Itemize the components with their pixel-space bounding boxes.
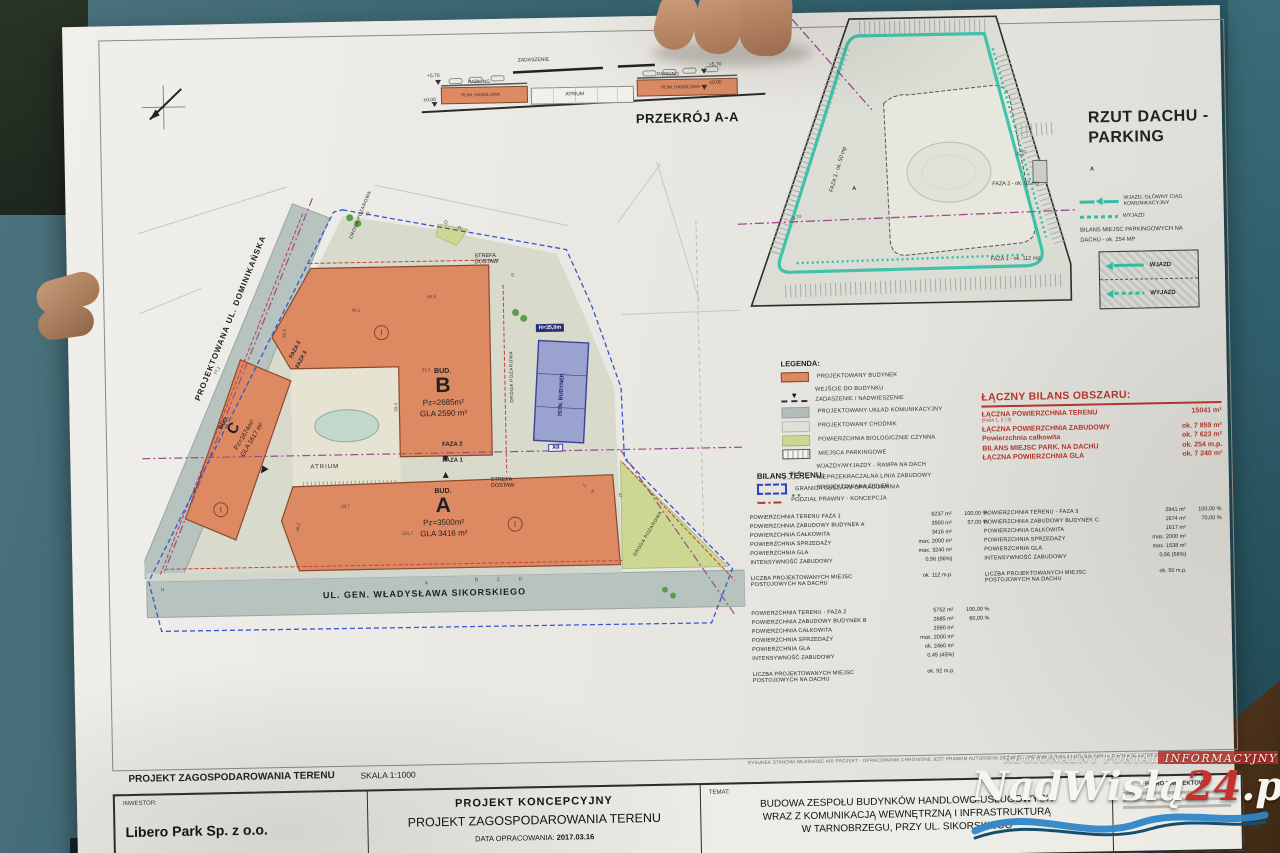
legend-item: ZADASZENIE / NADWIESZENIE (781, 394, 993, 404)
ramp-entry-row: WJAZD (1100, 250, 1199, 279)
table-cell-value: ok. 2460 m² (900, 643, 954, 650)
table-cell-pct (954, 628, 990, 629)
legend-item: WEJŚCIE DO BUDYNKU (781, 382, 993, 395)
legend-item: POWIERZCHNIA BIOLOGICZNIE CZYNNA (782, 431, 994, 446)
table-cell-label: POWIERZCHNIA GLA (750, 548, 898, 557)
table-cell-value: 5752 m² (899, 607, 953, 614)
table-cell-pct (952, 560, 988, 561)
zadaszenie-label: ZADASZENIE (518, 58, 550, 64)
table-cell-value: 2685 m² (899, 616, 953, 623)
table-faza2: POWIERZCHNIA TERENU - FAZA 25752 m²100,0… (751, 603, 990, 687)
table-cell-label: POWIERZCHNIA GLA (984, 544, 1132, 553)
summary-label: Powierzchnia całkowita (982, 434, 1060, 443)
delivery-zone-label: STREFADOSTAW (491, 477, 515, 490)
table-cell-value: 0,56 (56%) (1132, 552, 1186, 559)
project-type: PROJEKT KONCEPCYJNY (368, 793, 700, 811)
ramp-entry-label: WJAZD (1150, 261, 1171, 267)
dimension-label: 58,7 (341, 504, 350, 509)
section-marker: A (852, 186, 856, 192)
table-row: INTENSYWNOŚĆ ZABUDOWY0,56 (56%) (750, 556, 988, 567)
table-cell-value: ok. 92 m.p. (900, 668, 954, 675)
building-b-label: BUD. B Pz=2685m² GLA 2590 m² (393, 367, 494, 419)
date-label: DATA OPRACOWANIA: (475, 833, 555, 844)
total-balance-rows: ŁĄCZNA POWIERZCHNIA TERENU(Faza 1, 2 i 3… (982, 407, 1223, 462)
legend-item: PROJEKTOWANY CHODNIK (782, 417, 994, 432)
watermark: REGIONALNY PORTAL INFORMACYJNY NadWisłą2… (970, 751, 1280, 851)
total-balance: ŁĄCZNY BILANS OBSZARU: ŁĄCZNA POWIERZCHN… (981, 387, 1222, 464)
table-cell-label: POWIERZCHNIA GLA (752, 644, 900, 653)
table-faza3: POWIERZCHNIA TERENU - FAZA 32941 m²100,0… (983, 503, 1222, 587)
summary-label: ŁĄCZNA POWIERZCHNIA ZABUDOWY (982, 424, 1110, 433)
table-cell-value: 1674 m² (1132, 516, 1186, 523)
plan-title: PROJEKT ZAGOSPODAROWANIA TERENU (128, 770, 334, 785)
sw-mp-swatch (782, 449, 810, 460)
dimension-label: 131,7 (402, 531, 413, 536)
table-cell-pct: 70,00 % (1186, 515, 1222, 522)
roof-balance-line2: DACHU - ok. 254 MP (1080, 237, 1135, 245)
table-cell-label: POWIERZCHNIA ZABUDOWY BUDYNEK B (752, 617, 900, 626)
table-cell-pct (1186, 528, 1222, 529)
table-cell-label: POWIERZCHNIA ZABUDOWY BUDYNEK A (750, 521, 898, 530)
section-marker: A (1090, 166, 1094, 172)
survey-marker: B (475, 577, 478, 583)
table-cell-label: POWIERZCHNIA CAŁKOWITA (984, 526, 1132, 535)
table-cell-label: POWIERZCHNIA SPRZEDAŻY (752, 635, 900, 644)
legend-label: GRANICA OBSZARU OPRACOWANIA (795, 484, 900, 492)
table-cell-pct: 100,00 % (953, 606, 989, 613)
parking-label: PARKING (468, 80, 490, 86)
sw-walk-swatch (782, 421, 810, 433)
table-cell-label: INTENSYWNOŚĆ ZABUDOWY (752, 653, 900, 662)
terrain-balance: BILANS TERENU: GRANICA OBSZARU OPRACOWAN… (757, 468, 978, 508)
ramp-exit-row: WYJAZD (1100, 277, 1199, 307)
survey-marker: D (519, 576, 523, 582)
summary-value: ok. 7 240 m² (1182, 450, 1222, 458)
dimension-label: 60,9 (427, 294, 436, 299)
legend-item: PROJEKTOWANY BUDYNEK (781, 368, 993, 382)
entry-line (1114, 263, 1144, 267)
legend-label: MIEJSCA PARKINGOWE (818, 450, 886, 457)
project-name: PROJEKT ZAGOSPODAROWANIA TERENU (368, 810, 700, 830)
site-plan: PROJEKTOWANA UL. DOMINIKAŃSKA UL. GEN. W… (137, 160, 746, 649)
terrain-balance-list: GRANICA OBSZARU OPRACOWANIAPODZIAŁ PRAWN… (757, 480, 977, 504)
atrium-label: ATRIUM (565, 92, 584, 98)
legend-label: PROJEKTOWANY BUDYNEK (817, 372, 897, 380)
subject-label: TEMAT: (709, 790, 730, 796)
exit-line-swatch (1080, 215, 1118, 219)
survey-marker: A (591, 489, 594, 495)
investor-cell: INWESTOR: Libero Park Sp. z o.o. (115, 791, 369, 853)
table-cell-pct: 60,00 % (953, 615, 989, 622)
table-cell-label: POWIERZCHNIA SPRZEDAŻY (750, 539, 898, 548)
xii-label: XII (548, 444, 563, 452)
table-cell-pct: 100,00 % (1185, 506, 1221, 513)
sw-bio-swatch (782, 435, 810, 447)
table-cell-pct (954, 637, 990, 638)
sw-road-swatch (781, 406, 809, 418)
table-cell-value: max. 1538 m² (1132, 543, 1186, 550)
legend-label: POWIERZCHNIA BIOLOGICZNIE CZYNNA (818, 435, 935, 443)
table-cell-pct: 100,00 % (951, 511, 987, 518)
total-balance-title: ŁĄCZNY BILANS OBSZARU: (981, 387, 1221, 408)
table-cell-pct (1186, 555, 1222, 556)
dimension-label: 35,4 (282, 329, 287, 338)
summary-value: 15041 m² (1192, 407, 1222, 415)
table-cell-label: LICZBA PROJEKTOWANYCH MIEJSC POSTOJOWYCH… (753, 669, 901, 684)
table-cell-pct: 57,00 % (952, 520, 988, 527)
table-cell-pct (953, 576, 989, 577)
roof-faza1-label: FAZA 1 - ok. 112 mp (991, 255, 1041, 262)
sw-bld-swatch (781, 372, 809, 383)
table-row: LICZBA PROJEKTOWANYCH MIEJSC POSTOJOWYCH… (985, 567, 1223, 584)
table-cell-value: max. 2000 m² (1132, 534, 1186, 541)
roof-title-line2: PARKING (1088, 128, 1164, 148)
table-cell-value: 3416 m² (898, 529, 952, 536)
table-cell-label: LICZBA PROJEKTOWANYCH MIEJSC POSTOJOWYCH… (985, 569, 1133, 584)
survey-marker: H (161, 587, 165, 593)
summary-row: ŁĄCZNA POWIERZCHNIA GLAok. 7 240 m² (982, 450, 1222, 462)
legend-item: PROJEKTOWANY UKŁAD KOMUNIKACYJNY (781, 403, 993, 418)
ramp-exit-label: WYJAZD (1150, 289, 1175, 295)
dimension-label: 31,4 (422, 367, 431, 372)
route-line-swatch (1104, 200, 1119, 203)
table-cell-value: 3500 m² (898, 520, 952, 527)
delivery-zone-label: STREFADOSTAW (474, 253, 498, 266)
exit-line (1114, 291, 1144, 295)
project-cell: PROJEKT KONCEPCYJNY PROJEKT ZAGOSPODAROW… (368, 785, 702, 853)
roof-legend-label: WJAZD, GŁÓWNY CIĄGKOMUNIKACYJNY (1123, 194, 1182, 208)
legend-label: ZADASZENIE / NADWIESZENIE (815, 395, 904, 403)
survey-marker: A (425, 580, 428, 586)
investor-label: INWESTOR: (123, 801, 157, 808)
dimension-label: 46,1 (351, 308, 360, 313)
hand-left (36, 266, 122, 362)
table-faza1: POWIERZCHNIA TERENU FAZA 16237 m²100,00 … (749, 508, 988, 592)
date-row: DATA OPRACOWANIA: 2017.03.16 (369, 830, 701, 845)
table-cell-pct (1187, 571, 1223, 572)
watermark-wave-icon (970, 809, 1270, 849)
table-cell-label: INTENSYWNOŚĆ ZABUDOWY (984, 553, 1132, 562)
roof-title-line1: RZUT DACHU - (1088, 107, 1209, 128)
summary-value: ok. 7 859 m² (1182, 422, 1222, 430)
table-cell-pct (954, 646, 990, 647)
table-cell-label: LICZBA PROJEKTOWANYCH MIEJSC POSTOJOWYCH… (751, 573, 899, 588)
level-label: ±0,00 (709, 81, 722, 87)
plan-board: ZADASZENIE +5,70 ±0,00 PARKING POW. HAND… (62, 5, 1236, 853)
table-cell-label: POWIERZCHNIA CAŁKOWITA (750, 530, 898, 539)
table-cell-value: 2941 m² (1131, 507, 1185, 514)
summary-sublabel: (Faza 1, 2 i 3) (982, 416, 1098, 423)
roof-ramp-strip: WJAZD WYJAZD (1099, 249, 1200, 309)
table-cell-pct (952, 551, 988, 552)
table-row: INTENSYWNOŚĆ ZABUDOWY0,56 (56%) (984, 551, 1222, 562)
legend-label: WEJŚCIE DO BUDYNKU (815, 385, 883, 392)
date-value: 2017.03.16 (557, 832, 595, 842)
height-label: H=35,0m (536, 324, 564, 333)
faza1-label: FAZA 1 (442, 458, 463, 465)
table-row: INTENSYWNOŚĆ ZABUDOWY0,45 (45%) (752, 651, 990, 662)
table-row: LICZBA PROJEKTOWANYCH MIEJSC POSTOJOWYCH… (751, 572, 989, 589)
table-cell-value: 6237 m² (897, 511, 951, 518)
route-line-swatch (1080, 200, 1095, 203)
dimension-label: 33,4 (393, 403, 398, 412)
faza2-label: FAZA 2 (442, 442, 463, 449)
retail-label: POW. HANDLOWA (661, 84, 700, 90)
north-arrow-icon (133, 77, 194, 138)
table-cell-value: 1617 m² (1132, 525, 1186, 532)
atrium-label: ATRIUM (310, 464, 339, 471)
table-cell-value: 2590 m² (900, 625, 954, 632)
legend-item: PODZIAŁ PRAWNY - KONCEPCJA (757, 494, 977, 504)
table-cell-label: POWIERZCHNIA TERENU FAZA 1 (750, 512, 898, 521)
table-cell-pct (1186, 546, 1222, 547)
table-cell-pct (952, 533, 988, 534)
table-cell-value: max. 2000 m² (898, 538, 952, 545)
table-cell-value: 0,56 (56%) (898, 556, 952, 563)
legend-label: PROJEKTOWANY CHODNIK (818, 421, 897, 429)
watermark-logo: NadWisłą24.pl (972, 763, 1280, 810)
survey-marker: V (583, 483, 586, 489)
retail-label: POW. HANDLOWA (461, 92, 500, 98)
cross-section-title: PRZEKRÓJ A-A (636, 110, 739, 127)
table-cell-label: POWIERZCHNIA ZABUDOWY BUDYNEK C (984, 517, 1132, 526)
roof-legend-label: WYJAZD (1123, 212, 1145, 219)
survey-marker: O (366, 211, 370, 217)
summary-row: ŁĄCZNA POWIERZCHNIA TERENU(Faza 1, 2 i 3… (982, 407, 1222, 424)
roof-balance-line1: BILANS MIEJSC PARKINGOWYCH NA (1080, 226, 1183, 235)
table-cell-value: max. 2000 m² (900, 634, 954, 641)
survey-marker: S (511, 273, 514, 279)
sw-dash-swatch (781, 400, 807, 402)
survey-marker: R (458, 226, 462, 232)
table-cell-value: ok. 50 m.p. (1133, 568, 1187, 575)
table-cell-value: 0,45 (45%) (900, 652, 954, 659)
survey-marker: Q (444, 220, 448, 226)
legend-label: PODZIAŁ PRAWNY - KONCEPCJA (791, 496, 887, 504)
legend-item: GRANICA OBSZARU OPRACOWANIA (757, 480, 977, 495)
photo-stage: ZADASZENIE +5,70 ±0,00 PARKING POW. HAND… (0, 0, 1280, 853)
table-cell-value: max. 3240 m² (898, 547, 952, 554)
entry-arrow-icon (1106, 262, 1113, 270)
survey-marker: E (619, 493, 622, 499)
legend-item: MIEJSCA PARKINGOWE (782, 445, 994, 459)
finger (739, 0, 793, 57)
summary-value: ok. 7 623 m² (1182, 431, 1222, 439)
table-cell-label: INTENSYWNOŚĆ ZABUDOWY (750, 557, 898, 566)
level-label: +5,70 (427, 74, 440, 80)
survey-marker: C (497, 577, 501, 583)
summary-value: ok. 254 m.p. (1182, 440, 1222, 448)
roof-legend-route: WJAZD, GŁÓWNY CIĄGKOMUNIKACYJNY (1079, 194, 1182, 209)
summary-label: ŁĄCZNA POWIERZCHNIA GLA (982, 453, 1084, 462)
level-label: ±0,00 (423, 98, 436, 104)
table-cell-label: POWIERZCHNIA SPRZEDAŻY (984, 535, 1132, 544)
legend-label: PROJEKTOWANY UKŁAD KOMUNIKACYJNY (817, 406, 942, 414)
scale-label: SKALA 1:1000 (360, 770, 415, 781)
summary-label: BILANS MIEJSC PARK. NA DACHU (982, 443, 1098, 452)
table-cell-pct (1186, 537, 1222, 538)
table-cell-label: POWIERZCHNIA TERENU - FAZA 2 (751, 608, 899, 617)
sw-granica-swatch (757, 484, 787, 496)
table-cell-pct (952, 542, 988, 543)
roof-legend-exit: WYJAZD (1080, 212, 1145, 220)
table-cell-pct (954, 655, 990, 656)
exit-arrow-icon (1106, 290, 1113, 298)
table-cell-label: POWIERZCHNIA TERENU - FAZA 3 (983, 508, 1131, 517)
table-cell-label: POWIERZCHNIA CAŁKOWITA (752, 626, 900, 635)
table-row: LICZBA PROJEKTOWANYCH MIEJSC POSTOJOWYCH… (753, 667, 991, 684)
table-cell-pct (955, 671, 991, 672)
sw-podzial-swatch (757, 501, 783, 503)
hand-top (648, 0, 828, 74)
roof-faza2-label: FAZA 2 - ok. 92 mp (992, 180, 1039, 187)
fire-road-label: DROGA POŻAROWA (508, 351, 514, 403)
investor-name: Libero Park Sp. z o.o. (125, 821, 268, 840)
table-cell-value: ok. 112 m.p. (899, 572, 953, 579)
sw-entry-swatch (781, 385, 807, 394)
summary-label: ŁĄCZNA POWIERZCHNIA TERENU(Faza 1, 2 i 3… (982, 409, 1098, 423)
route-arrow-icon (1095, 198, 1102, 206)
